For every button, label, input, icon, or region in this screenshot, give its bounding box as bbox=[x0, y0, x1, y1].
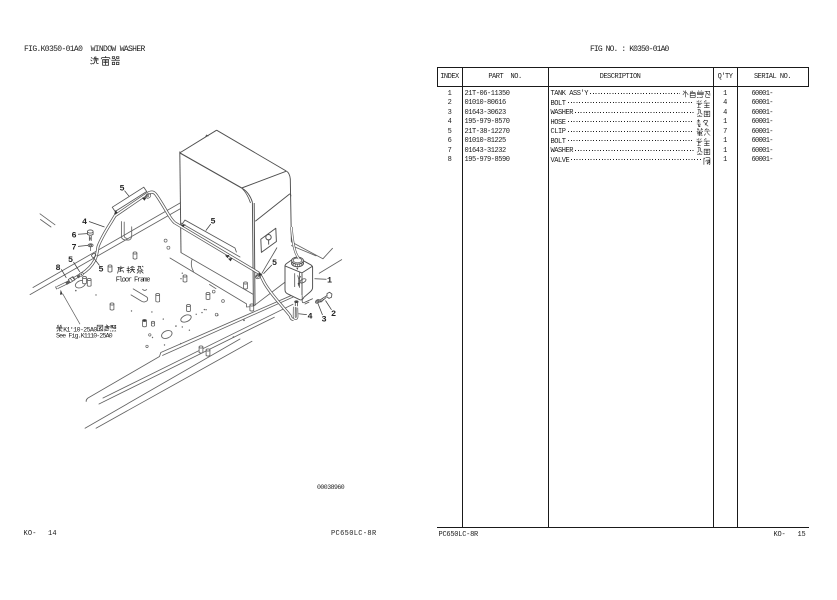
svg-text:8: 8 bbox=[55, 263, 60, 273]
svg-text:3: 3 bbox=[321, 314, 326, 324]
svg-text:5: 5 bbox=[210, 216, 215, 226]
svg-text:4: 4 bbox=[82, 217, 87, 227]
svg-text:4: 4 bbox=[307, 311, 312, 321]
svg-text:5: 5 bbox=[119, 184, 124, 194]
svg-text:7: 7 bbox=[71, 243, 76, 253]
svg-text:5: 5 bbox=[272, 258, 277, 268]
svg-text:Floor Frame: Floor Frame bbox=[116, 277, 151, 285]
svg-text:6: 6 bbox=[71, 230, 76, 240]
svg-text:5: 5 bbox=[68, 255, 73, 265]
svg-text:See Fig.K1110-25A0: See Fig.K1110-25A0 bbox=[56, 332, 113, 339]
svg-text:5: 5 bbox=[98, 265, 103, 275]
svg-text:2: 2 bbox=[331, 309, 336, 319]
svg-text:1: 1 bbox=[327, 276, 332, 286]
